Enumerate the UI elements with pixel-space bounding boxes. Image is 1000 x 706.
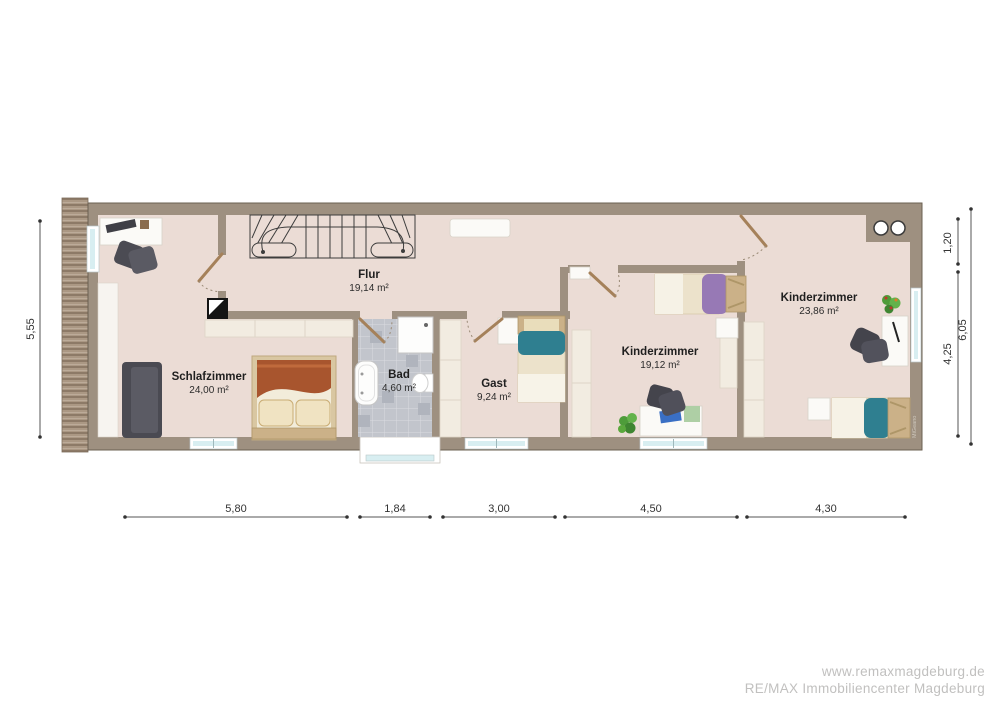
gast-bed bbox=[518, 316, 565, 402]
dimension-left: 5,55 bbox=[25, 219, 42, 439]
label-flur-name: Flur bbox=[358, 269, 380, 281]
sofa bbox=[122, 362, 162, 438]
desk bbox=[100, 218, 162, 245]
svg-text:4,30: 4,30 bbox=[815, 503, 836, 515]
kz1-shelf-top bbox=[570, 267, 590, 279]
plan-software-mark: MiGeano bbox=[912, 416, 918, 438]
svg-text:6,05: 6,05 bbox=[957, 319, 969, 340]
shower bbox=[398, 317, 433, 353]
label-bad-area: 4,60 m² bbox=[382, 383, 417, 394]
dormer-bad bbox=[360, 437, 440, 463]
label-kinderzimmer2-area: 23,86 m² bbox=[799, 306, 839, 317]
svg-text:4,50: 4,50 bbox=[640, 503, 661, 515]
label-gast-area: 9,24 m² bbox=[477, 392, 512, 403]
window-schlafzimmer-bottom bbox=[190, 438, 237, 449]
knee-wall-strip bbox=[98, 283, 118, 437]
svg-text:3,00: 3,00 bbox=[488, 503, 509, 515]
label-schlafzimmer-area: 24,00 m² bbox=[189, 385, 229, 396]
label-schlafzimmer-name: Schlafzimmer bbox=[172, 371, 247, 383]
svg-text:5,55: 5,55 bbox=[25, 318, 37, 339]
dimension-right: 1,20 4,25 6,05 bbox=[942, 207, 973, 446]
svg-text:5,80: 5,80 bbox=[225, 503, 246, 515]
kz2-bed bbox=[832, 398, 910, 438]
label-flur-area: 19,14 m² bbox=[349, 283, 389, 294]
watermark: www.remaxmagdeburg.de RE/MAX Immobilienc… bbox=[745, 664, 985, 696]
svg-text:4,25: 4,25 bbox=[942, 343, 954, 364]
label-kinderzimmer1-name: Kinderzimmer bbox=[622, 346, 699, 358]
svg-text:1,84: 1,84 bbox=[384, 503, 405, 515]
window-kinderzimmer1-bottom bbox=[640, 438, 707, 449]
window-left-wall bbox=[87, 226, 99, 272]
label-bad-name: Bad bbox=[388, 369, 410, 381]
kz2-wardrobe bbox=[744, 322, 764, 437]
watermark-url: www.remaxmagdeburg.de bbox=[821, 664, 985, 679]
floorplan-page: Flur 19,14 m² Schlafzimmer 24,00 m² Bad … bbox=[0, 0, 1000, 706]
label-kinderzimmer1-area: 19,12 m² bbox=[640, 360, 680, 371]
watermark-company: RE/MAX Immobiliencenter Magdeburg bbox=[745, 681, 985, 696]
gast-wardrobe bbox=[440, 320, 461, 437]
window-right-wall bbox=[911, 288, 921, 362]
double-bed bbox=[252, 356, 336, 440]
kz2-nightstand bbox=[808, 398, 830, 420]
wardrobe-row bbox=[205, 320, 353, 337]
roof-edge-band bbox=[62, 198, 88, 452]
dimension-bottom: 5,80 1,84 3,00 4,50 4,30 bbox=[123, 503, 907, 519]
label-gast-name: Gast bbox=[481, 378, 507, 390]
chimney-symbol bbox=[207, 298, 228, 319]
floorplan-drawing: Flur 19,14 m² Schlafzimmer 24,00 m² Bad … bbox=[0, 0, 1000, 706]
gast-shelf bbox=[498, 318, 520, 344]
kz1-nightstand bbox=[716, 318, 738, 338]
kz1-strip-right bbox=[720, 330, 737, 388]
flur-sideboard bbox=[450, 219, 510, 237]
bathtub bbox=[355, 361, 378, 405]
label-kinderzimmer2-name: Kinderzimmer bbox=[781, 292, 858, 304]
svg-text:1,20: 1,20 bbox=[942, 232, 954, 253]
kz1-bed bbox=[655, 274, 746, 314]
window-gast-bottom bbox=[465, 438, 528, 449]
